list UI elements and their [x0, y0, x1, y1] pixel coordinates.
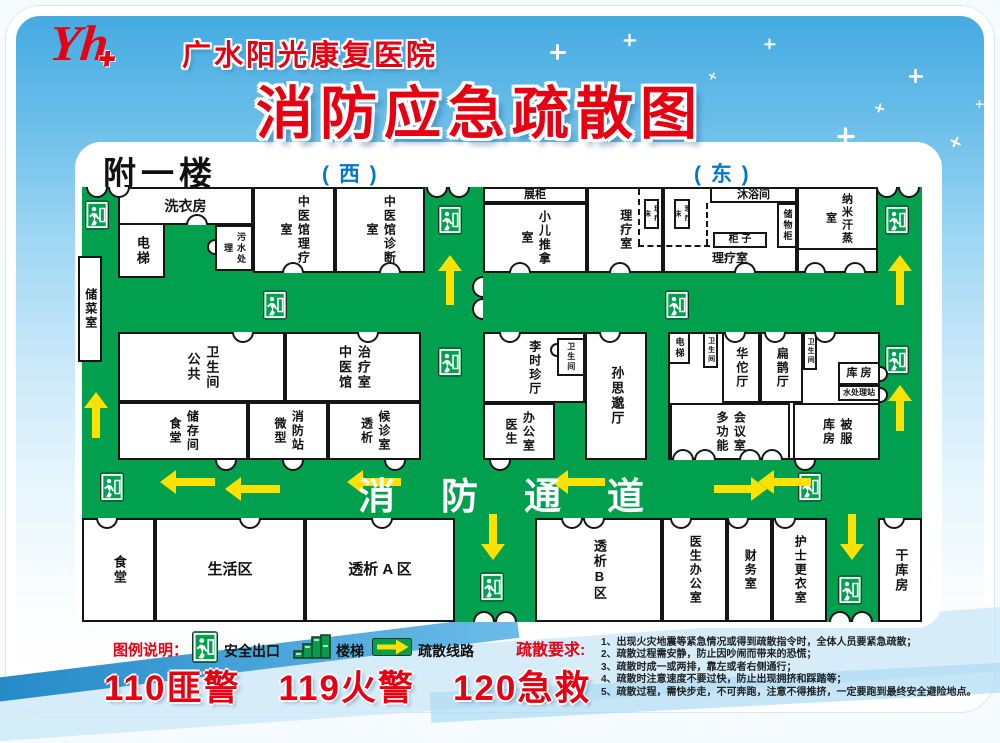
sparkle — [628, 34, 630, 47]
legend-exit-sign-icon — [192, 631, 218, 663]
room-label: 水处理站 — [843, 388, 875, 399]
room-tcm-physio-room: 中医馆理疗室 — [253, 187, 335, 273]
emergency-number-ambulance: 120急救 — [453, 660, 591, 711]
room-nano-steam-room: 纳米汗蒸室 — [797, 187, 878, 250]
room-label: 中医馆诊断室 — [363, 189, 398, 271]
exit-sign-icon — [438, 347, 462, 377]
room-dialysis-waiting: 候诊室 透析 — [328, 402, 421, 460]
requirement-item: 4、疏散时注意速度不要过快，防止出现拥挤和踩踏等； — [601, 674, 963, 686]
room-sewage-treatment: 污水处理 — [215, 225, 253, 271]
room-physio-bed-1: 理疗床 — [644, 199, 659, 229]
room-label: 财务室 — [741, 549, 758, 591]
room-tcm-diagnosis-room: 中医馆诊断室 — [335, 187, 425, 273]
legend-route-arrow-icon — [372, 638, 412, 656]
legend-exit-label: 安全出口 — [224, 641, 280, 661]
legend-stairs-label: 楼梯 — [336, 641, 364, 661]
room-label: 污水处理 — [221, 227, 247, 269]
sparkle — [710, 72, 715, 80]
exit-sign-icon — [885, 205, 909, 235]
legend-route-label: 疏散线路 — [418, 641, 474, 661]
room-elevator-east: 电梯 — [668, 332, 690, 364]
evacuation-arrow-up — [438, 255, 462, 307]
room-label: 小儿推拿室 — [518, 205, 553, 271]
room-label: 储物柜 — [780, 209, 793, 242]
sparkle — [877, 103, 881, 113]
exit-sign-icon — [665, 290, 689, 320]
room-tcm-treatment-room: 治疗室 中医馆 — [285, 332, 421, 402]
evacuation-arrow-up — [888, 385, 912, 433]
dashed-partition — [638, 245, 710, 247]
room-label: 李时珍厅 — [525, 340, 542, 396]
emergency-number-police: 110匪警 — [104, 660, 240, 711]
sparkle — [979, 100, 981, 108]
evacuation-arrow-up — [888, 255, 912, 307]
room-laundry: 洗衣房 — [118, 187, 253, 225]
exit-sign-icon — [480, 572, 504, 602]
requirement-item: 3、疏散时成一或两排，靠左或者右侧通行； — [601, 662, 963, 674]
floor-map: 消防通道 洗衣房电梯污水处理中医馆理疗室中医馆诊断室展柜小儿推拿室理疗室理疗室沐… — [82, 180, 922, 622]
room-label: 理疗床 — [674, 201, 690, 227]
room-label: 消防站 微型 — [271, 410, 306, 452]
room-label: 办公室 医生 — [502, 411, 537, 453]
emergency-numbers: 110匪警 119火警 120急救 — [104, 660, 591, 711]
requirement-item: 5、疏散过程，需快步走，不可奔跑，注意不得推挤，一定要跑到最终安全避险地点。 — [601, 687, 963, 699]
room-label: 沐浴间 — [737, 188, 770, 203]
room-label: 华佗厅 — [732, 347, 749, 389]
room-doctor-office-south: 医生办公室 — [662, 518, 727, 622]
room-label: 被服 库房 — [819, 418, 854, 446]
exit-sign-icon — [438, 205, 462, 235]
room-label: 卫生间 — [705, 337, 715, 364]
evacuation-arrow-left — [160, 470, 217, 494]
exit-sign-icon — [100, 472, 124, 502]
room-label: 理疗室 — [616, 209, 633, 251]
room-label: 干库房 — [891, 548, 910, 593]
room-label: 洗衣房 — [165, 197, 207, 216]
evacuation-arrow-up — [84, 392, 108, 440]
room-label: 储菜室 — [81, 288, 98, 330]
dashed-partition — [706, 203, 708, 245]
sparkle — [952, 136, 959, 147]
sparkle — [914, 69, 917, 83]
room-sunsimiao-hall: 孙思邈厅 — [585, 332, 647, 460]
room-locker-cabinet: 储物柜 — [777, 203, 797, 248]
room-label: 中医馆理疗室 — [277, 189, 312, 271]
room-dialysis-area-a: 透析 A 区 — [305, 518, 455, 622]
room-label: 库 房 — [846, 366, 871, 381]
room-nurse-changing-room: 护士更衣室 — [772, 518, 827, 622]
room-public-restroom: 卫生间 公共 — [118, 332, 285, 402]
exit-sign-icon — [263, 290, 287, 320]
dashed-partition — [638, 189, 640, 245]
requirements-list: 1、出现火灾地震等紧急情况或得到疏散指令时，全体人员要紧急疏散；2、疏散过程需安… — [601, 637, 963, 699]
room-label: 孙思邈厅 — [607, 366, 626, 426]
room-linen-storeroom: 被服 库房 — [793, 403, 880, 460]
room-veg-storage: 储菜室 — [78, 256, 102, 362]
room-label: 会议室 多功能 — [713, 411, 748, 453]
room-label: 电梯 — [132, 236, 151, 266]
evacuation-arrow-down — [840, 512, 864, 560]
requirement-item: 1、出现火灾地震等紧急情况或得到疏散指令时，全体人员要紧急疏散； — [601, 637, 963, 649]
exit-sign-icon — [838, 575, 862, 605]
exit-sign-icon — [85, 200, 109, 230]
sparkle — [556, 44, 559, 60]
evacuation-arrow-right — [712, 477, 767, 501]
room-pediatric-massage-room: 小儿推拿室 — [483, 203, 587, 273]
room-finance-office: 财务室 — [727, 518, 772, 622]
emergency-number-fire: 119火警 — [278, 660, 414, 711]
room-mini-fire-station: 消防站 微型 — [248, 402, 328, 460]
room-restroom-east-1: 卫生间 — [703, 332, 718, 368]
door-arc — [550, 343, 557, 357]
room-label: 卫生间 公共 — [183, 345, 221, 390]
legend-title: 图例说明： — [113, 639, 188, 660]
room-label: 透析B区 — [589, 539, 608, 601]
requirement-item: 2、疏散过程需安静，防止因吵闹而带来的恐慌； — [601, 649, 963, 661]
room-label: 卫生间 — [805, 338, 815, 365]
room-canteen-storage: 储存间 食堂 — [118, 402, 248, 460]
fire-corridor-label: 消防通道 — [358, 466, 690, 520]
room-storeroom: 库 房 — [838, 362, 880, 385]
room-huatuo-hall: 华佗厅 — [722, 332, 760, 403]
room-label: 纳米汗蒸室 — [822, 189, 854, 248]
room-label: 展柜 — [524, 188, 546, 203]
medical-cross-icon: ✚ — [98, 49, 117, 71]
room-label: 柜 子 — [729, 233, 752, 247]
legend-stairs-icon — [292, 634, 332, 660]
room-canteen-south: 食堂 — [82, 518, 155, 622]
room-label: 透析 A 区 — [348, 560, 412, 580]
room-water-treatment-station: 水处理站 — [838, 385, 880, 401]
room-label: 医生办公室 — [686, 535, 703, 605]
room-label: 卫生间 — [565, 342, 577, 372]
poster-title: 消防应急疏散图 — [256, 68, 704, 150]
room-restroom-center: 卫生间 — [557, 338, 585, 376]
room-living-area: 生活区 — [155, 518, 305, 622]
requirements-title: 疏散要求: — [516, 636, 585, 660]
room-doctor-office-mid: 办公室 医生 — [483, 403, 555, 460]
room-label: 理疗床 — [644, 201, 659, 227]
sparkle — [768, 38, 770, 49]
room-label: 电梯 — [672, 337, 685, 359]
room-display-cabinet: 展柜 — [483, 187, 587, 203]
room-elevator-west: 电梯 — [118, 223, 165, 278]
room-dialysis-area-b: 透析B区 — [535, 518, 662, 622]
evacuation-arrow-left — [225, 477, 282, 501]
room-label: 扁鹊厅 — [773, 347, 790, 389]
room-cabinet: 柜 子 — [713, 232, 767, 248]
room-bianque-hall: 扁鹊厅 — [760, 332, 803, 403]
room-label: 护士更衣室 — [791, 535, 808, 605]
room-label: 生活区 — [207, 560, 252, 580]
exit-sign-icon — [885, 345, 909, 375]
room-dry-storeroom: 干库房 — [878, 518, 922, 622]
room-label: 储存间 食堂 — [166, 410, 201, 452]
hospital-logo: Yh✚ — [47, 18, 120, 70]
room-shower-room: 沐浴间 — [710, 187, 797, 203]
room-label: 食堂 — [109, 555, 128, 585]
room-physio-bed-2: 理疗床 — [674, 199, 690, 229]
room-label: 候诊室 透析 — [357, 410, 392, 452]
room-label: 治疗室 中医馆 — [334, 345, 372, 390]
